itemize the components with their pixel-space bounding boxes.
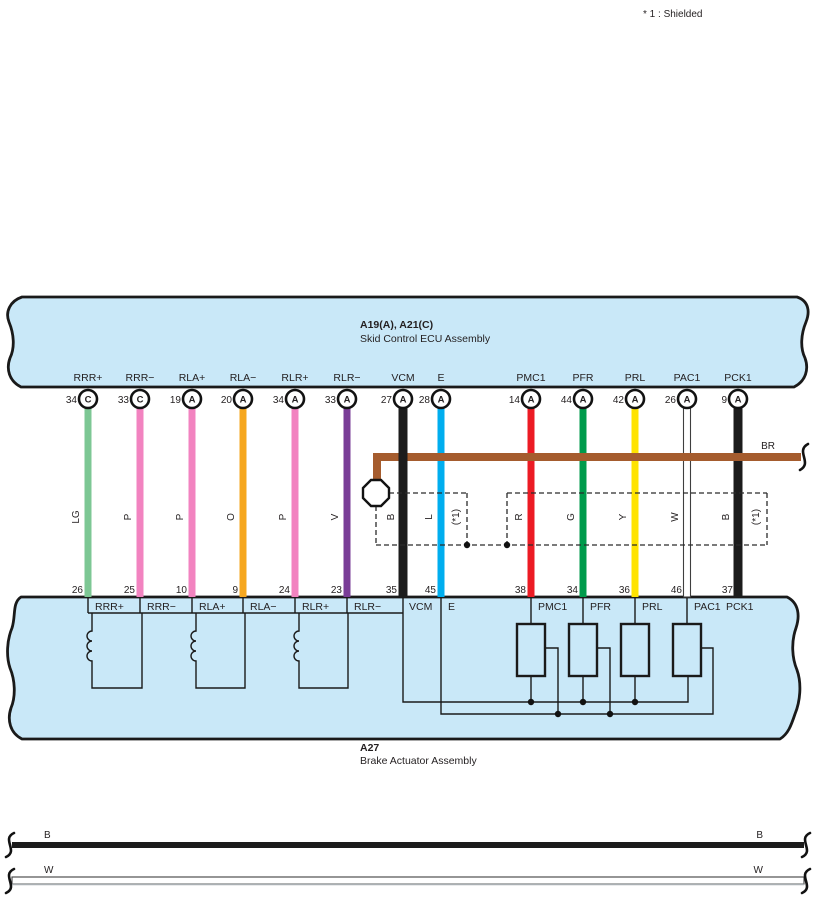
- ecu-pin-number: 19: [170, 395, 182, 406]
- actuator-pin-label: RRR−: [147, 601, 176, 613]
- ecu-pin-label: PMC1: [516, 372, 545, 384]
- ecu-pin-label: PCK1: [724, 372, 752, 384]
- sensor-box-pac1: [673, 624, 701, 676]
- wire-color-code: LG: [71, 510, 82, 524]
- actuator-pin-number: 36: [619, 585, 631, 596]
- wire-segment: [684, 407, 691, 597]
- actuator-code: A27: [360, 742, 379, 754]
- actuator-pin-number: 9: [232, 585, 238, 596]
- white-wire-label-left: W: [44, 865, 54, 876]
- ecu-pin-label: RRR+: [74, 372, 103, 384]
- actuator-pin-label: PMC1: [538, 601, 567, 613]
- wire-color-code: G: [566, 513, 577, 521]
- br-wire-label: BR: [761, 441, 775, 452]
- white-bus-wire: W W: [6, 865, 810, 893]
- connector-letter: A: [400, 395, 407, 406]
- shield-ref-label: (*1): [751, 509, 762, 525]
- connector-letter: A: [344, 395, 351, 406]
- connector-letter: A: [240, 395, 247, 406]
- actuator-pin-label: PAC1: [694, 601, 721, 613]
- actuator-pin-label: VCM: [409, 601, 432, 613]
- connector-letter: A: [438, 395, 445, 406]
- ecu-pin-label: RLA−: [230, 372, 257, 384]
- ecu-pin-number: 44: [561, 395, 573, 406]
- wire-segment: [344, 407, 351, 597]
- wire-break-squiggle: [800, 444, 808, 470]
- ecu-pin-label: RLR−: [333, 372, 360, 384]
- ecu-pin-label: RLR+: [281, 372, 308, 384]
- shield-outline: (*1) (*1): [363, 480, 767, 548]
- wiring-diagram-canvas: * 1 : Shielded A19(A), A21(C) Skid Contr…: [0, 0, 818, 905]
- shield-ref-label: (*1): [451, 509, 462, 525]
- ecu-pin-label: PFR: [573, 372, 594, 384]
- sensor-box-pfr: [569, 624, 597, 676]
- wire-color-code: V: [330, 513, 341, 520]
- ecu-pin-number: 42: [613, 395, 625, 406]
- black-wire-label-right: B: [756, 830, 763, 841]
- wire-color-code: P: [123, 513, 134, 520]
- wire-color-code: W: [670, 512, 681, 522]
- ecu-pin-label: VCM: [391, 372, 414, 384]
- ecu-pin-number: 28: [419, 395, 431, 406]
- ecu-pin-number: 20: [221, 395, 233, 406]
- wire-color-code: P: [175, 513, 186, 520]
- connector-letter: A: [292, 395, 299, 406]
- actuator-pin-label: PRL: [642, 601, 663, 613]
- actuator-pin-number: 24: [279, 585, 291, 596]
- actuator-pin-number: 45: [425, 585, 437, 596]
- wire-rrr-minus: RRR− 33 C P 25 RRR−: [118, 372, 176, 613]
- actuator-pin-label: RLA+: [199, 601, 226, 613]
- ecu-pin-number: 34: [273, 395, 285, 406]
- ecu-pin-number: 33: [325, 395, 337, 406]
- white-wire-segment: [12, 877, 804, 884]
- actuator-pin-label: E: [448, 601, 455, 613]
- connector-letter: A: [528, 395, 535, 406]
- actuator-pin-number: 10: [176, 585, 188, 596]
- actuator-pin-label: RLA−: [250, 601, 277, 613]
- wire-color-code: B: [386, 513, 397, 520]
- connector-letter: A: [580, 395, 587, 406]
- actuator-pin-number: 37: [722, 585, 734, 596]
- actuator-pin-number: 34: [567, 585, 579, 596]
- ecu-pin-number: 34: [66, 395, 78, 406]
- black-wire-label-left: B: [44, 830, 51, 841]
- ecu-pin-label: RLA+: [179, 372, 206, 384]
- actuator-pin-number: 35: [386, 585, 398, 596]
- connector-letter: A: [632, 395, 639, 406]
- connector-letter: A: [735, 395, 742, 406]
- white-wire-label-right: W: [754, 865, 764, 876]
- ecu-pin-label: PAC1: [674, 372, 701, 384]
- actuator-pin-label: RLR+: [302, 601, 329, 613]
- wire-rla-minus: RLA− 20 A O 9 RLA−: [221, 372, 277, 613]
- wire-rla-plus: RLA+ 19 A P 10 RLA+: [170, 372, 226, 613]
- wire-rlr-plus: RLR+ 34 A P 24 RLR+: [273, 372, 329, 613]
- wire-segment: [528, 407, 535, 597]
- sensor-box-prl: [621, 624, 649, 676]
- actuator-pin-number: 38: [515, 585, 527, 596]
- actuator-pin-number: 26: [72, 585, 84, 596]
- actuator-pin-label: PCK1: [726, 601, 754, 613]
- wiring-diagram-page: * 1 : Shielded A19(A), A21(C) Skid Contr…: [0, 0, 818, 905]
- shield-splice-octagon: [363, 480, 389, 506]
- connector-letter: A: [189, 395, 196, 406]
- wire-segment: [292, 407, 299, 597]
- connector-letter: C: [85, 395, 92, 406]
- actuator-pin-label: RLR−: [354, 601, 381, 613]
- wire-segment: [580, 407, 587, 597]
- ecu-pin-number: 14: [509, 395, 521, 406]
- wire-segment: [137, 407, 144, 597]
- ecu-pin-number: 26: [665, 395, 677, 406]
- ecu-pin-label: RRR−: [126, 372, 155, 384]
- shielded-note: * 1 : Shielded: [643, 9, 703, 20]
- wire-segment: [438, 407, 445, 597]
- wire-segment: [399, 407, 408, 597]
- black-bus-wire: B B: [6, 830, 810, 857]
- ecu-code: A19(A), A21(C): [360, 319, 433, 331]
- wire-color-code: O: [226, 513, 237, 521]
- actuator-pin-label: PFR: [590, 601, 611, 613]
- connector-letter: C: [137, 395, 144, 406]
- sensor-box-pmc1: [517, 624, 545, 676]
- actuator-pin-label: RRR+: [95, 601, 124, 613]
- wire-color-code: P: [278, 513, 289, 520]
- wire-segment: [85, 407, 92, 597]
- ecu-pin-number: 9: [721, 395, 727, 406]
- wire-segment: [189, 407, 196, 597]
- wire-color-code: B: [721, 513, 732, 520]
- connector-letter: A: [684, 395, 691, 406]
- wire-color-code: R: [514, 513, 525, 520]
- wire-segment: [240, 407, 247, 597]
- actuator-pin-number: 46: [671, 585, 683, 596]
- ecu-pin-label: PRL: [625, 372, 646, 384]
- ecu-pin-number: 33: [118, 395, 130, 406]
- ecu-pin-label: E: [437, 372, 444, 384]
- actuator-name: Brake Actuator Assembly: [360, 755, 477, 767]
- black-wire-segment: [12, 842, 804, 848]
- wire-rrr-plus: RRR+ 34 C LG 26 RRR+: [66, 372, 124, 613]
- wire-segment: [734, 407, 743, 597]
- wire-segment: [632, 407, 639, 597]
- wire-color-code: L: [424, 514, 435, 520]
- actuator-pin-number: 23: [331, 585, 343, 596]
- actuator-pin-number: 25: [124, 585, 136, 596]
- ecu-pin-number: 27: [381, 395, 393, 406]
- ecu-name: Skid Control ECU Assembly: [360, 333, 491, 345]
- wire-color-code: Y: [618, 513, 629, 520]
